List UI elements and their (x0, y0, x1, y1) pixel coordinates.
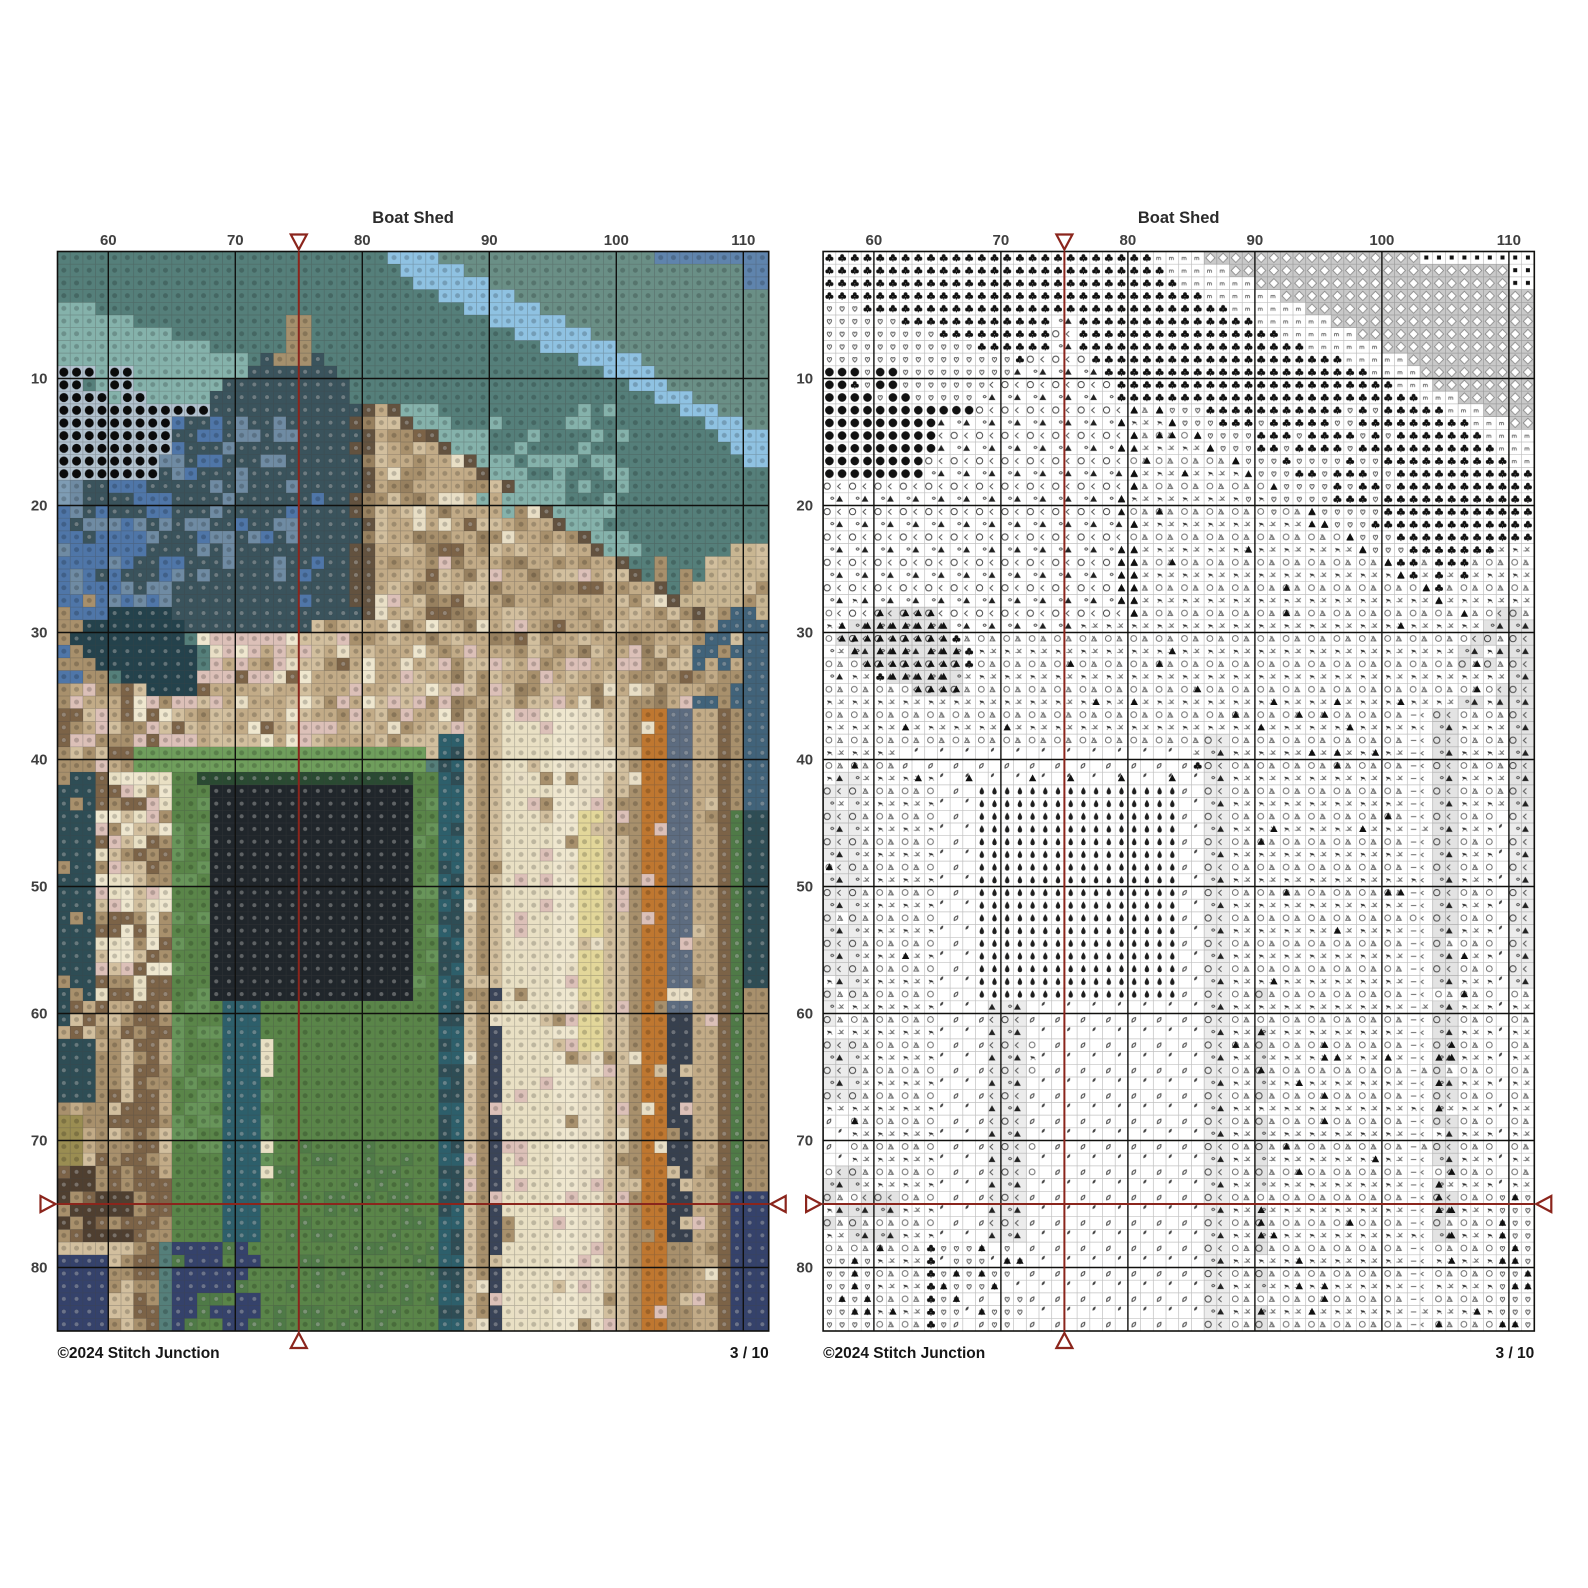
svg-text:70: 70 (227, 232, 244, 249)
svg-text:70: 70 (31, 1133, 48, 1150)
svg-text:100: 100 (1369, 232, 1394, 249)
svg-text:60: 60 (796, 1006, 813, 1023)
svg-text:©2024 Stitch Junction: ©2024 Stitch Junction (58, 1345, 220, 1362)
svg-text:10: 10 (796, 371, 813, 388)
svg-text:60: 60 (31, 1006, 48, 1023)
svg-text:60: 60 (866, 232, 883, 249)
svg-text:70: 70 (796, 1133, 813, 1150)
svg-text:80: 80 (31, 1260, 48, 1277)
svg-text:3 / 10: 3 / 10 (730, 1345, 769, 1362)
svg-text:50: 50 (796, 879, 813, 896)
svg-text:70: 70 (993, 232, 1010, 249)
svg-text:30: 30 (796, 625, 813, 642)
svg-text:Boat Shed: Boat Shed (1138, 209, 1220, 227)
svg-text:90: 90 (1247, 232, 1264, 249)
svg-text:80: 80 (796, 1260, 813, 1277)
svg-text:©2024 Stitch Junction: ©2024 Stitch Junction (823, 1345, 985, 1362)
svg-text:80: 80 (1120, 232, 1137, 249)
svg-text:3 / 10: 3 / 10 (1496, 1345, 1535, 1362)
svg-text:40: 40 (31, 752, 48, 769)
svg-text:30: 30 (31, 625, 48, 642)
svg-text:110: 110 (1497, 232, 1521, 249)
svg-text:50: 50 (31, 879, 48, 896)
svg-text:100: 100 (604, 232, 629, 249)
svg-text:20: 20 (796, 498, 813, 515)
svg-text:10: 10 (31, 371, 48, 388)
svg-text:Boat Shed: Boat Shed (372, 209, 454, 227)
svg-text:60: 60 (100, 232, 117, 249)
svg-text:90: 90 (481, 232, 498, 249)
svg-text:40: 40 (796, 752, 813, 769)
svg-text:20: 20 (31, 498, 48, 515)
svg-text:80: 80 (354, 232, 371, 249)
svg-text:110: 110 (731, 232, 755, 249)
